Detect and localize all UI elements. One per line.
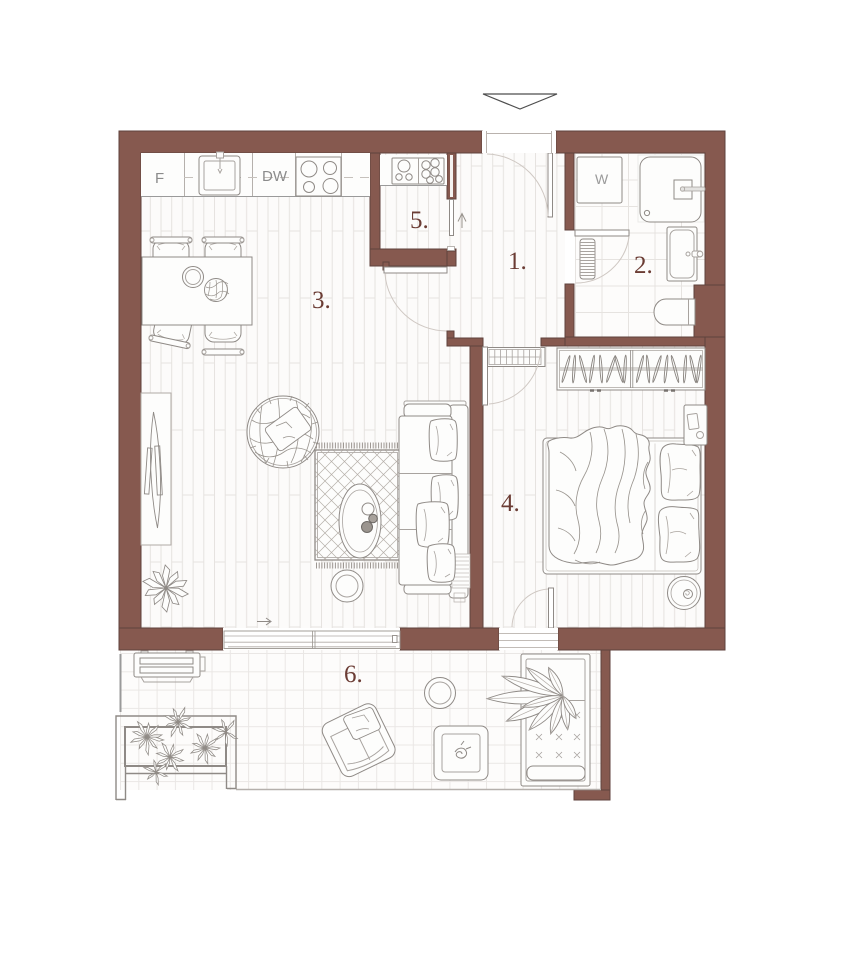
svg-text:2.: 2. bbox=[634, 252, 653, 279]
svg-text:1.: 1. bbox=[508, 248, 527, 275]
svg-text:5.: 5. bbox=[410, 207, 429, 234]
svg-text:DW: DW bbox=[262, 168, 288, 185]
svg-text:F: F bbox=[155, 170, 164, 187]
svg-text:4.: 4. bbox=[501, 490, 520, 517]
svg-text:3.: 3. bbox=[312, 287, 331, 314]
svg-text:6.: 6. bbox=[344, 661, 363, 688]
svg-text:W: W bbox=[595, 171, 609, 187]
